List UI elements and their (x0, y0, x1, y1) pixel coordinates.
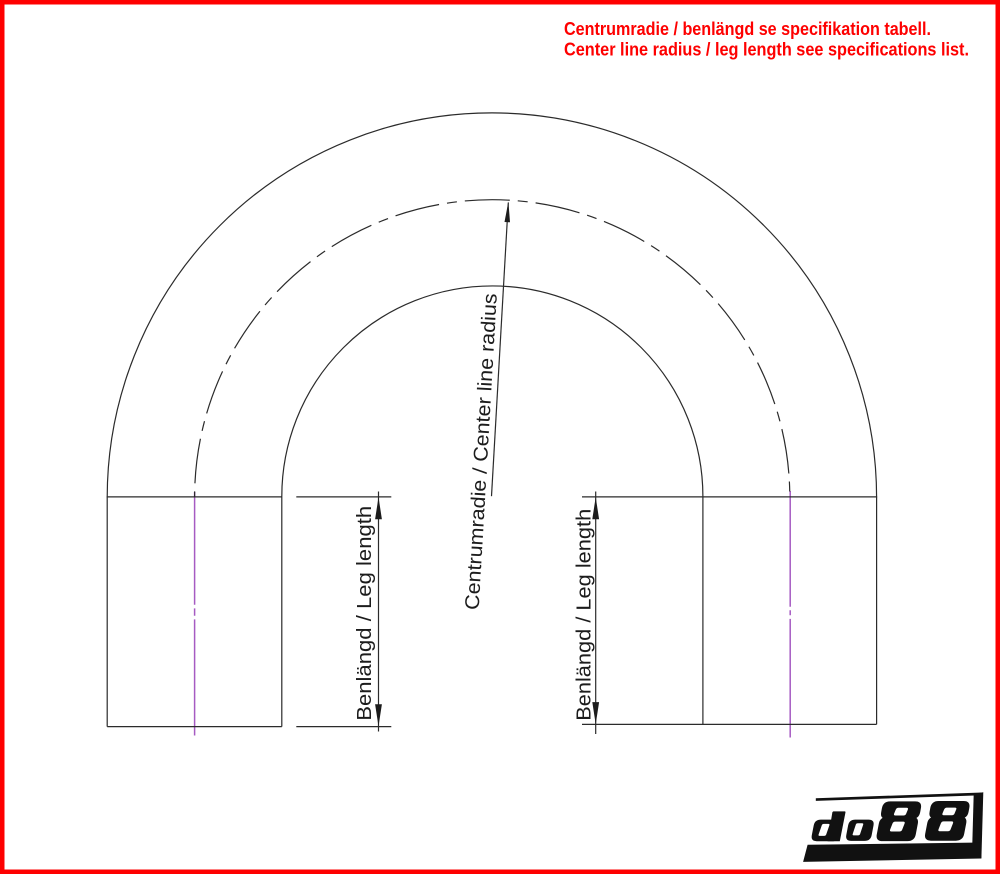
svg-text:Centrumradie / benlängd se spe: Centrumradie / benlängd se specifikation… (564, 19, 931, 39)
svg-text:Benlängd / Leg length: Benlängd / Leg length (573, 509, 595, 721)
svg-text:Benlängd / Leg length: Benlängd / Leg length (354, 506, 376, 721)
svg-text:Center line radius / leg lengt: Center line radius / leg length see spec… (564, 39, 969, 59)
